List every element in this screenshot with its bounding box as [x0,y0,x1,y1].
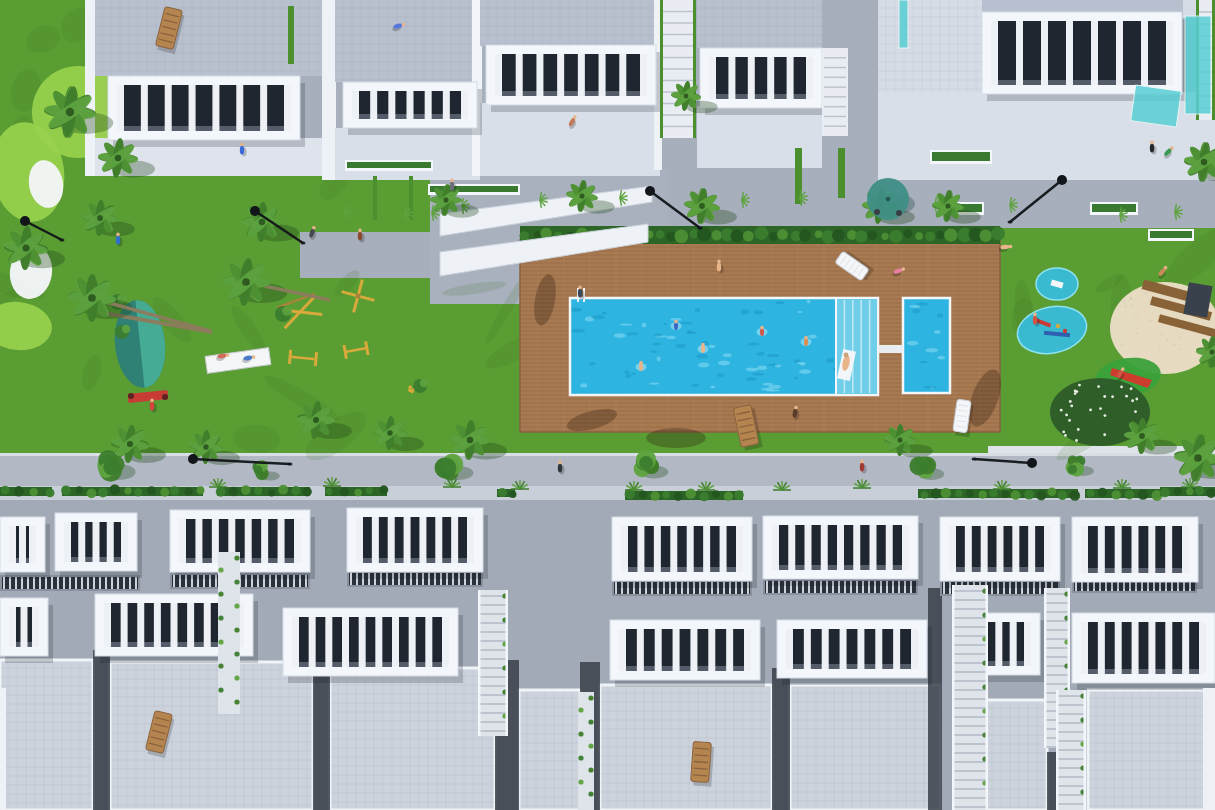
edge-wall [1203,688,1215,810]
terrace-roof [790,685,940,810]
pool-steps [836,298,878,395]
shadow-gap [93,650,110,810]
rooftop-balustrade [343,82,482,135]
splash-pond [1036,268,1078,300]
pergola-row2 [1072,613,1215,690]
shadow-gap [1047,752,1057,810]
pergola-row1 [763,516,923,586]
building-wall [697,106,822,168]
stair-corridor [952,585,988,810]
building-wall [85,0,95,176]
pergola-row1 [940,517,1065,588]
building-roof [697,0,822,48]
planter-strip [373,176,377,220]
building-roof [878,0,982,92]
pergola-row1 [612,517,757,588]
promenade-ext [300,232,450,278]
pergola-row1 [170,510,315,579]
stair-corridor [218,552,240,714]
edge-wall [0,688,6,810]
pergola-row1 [0,517,50,579]
pergola-row2 [610,620,765,687]
building-wall [480,103,660,176]
rooftop-balustrade [486,45,661,112]
building-roof [335,0,480,82]
pergola-row2 [0,598,53,663]
stairway [660,0,696,138]
aerial-render-svg [0,0,1215,810]
terrace-roof [330,668,495,810]
pergola-row1 [55,513,142,578]
terrace-roof [0,660,93,810]
rooftop-balustrade [108,76,305,147]
lawn-left [0,176,433,462]
shadow-gap [772,668,790,810]
glass-canopy [899,0,908,48]
stairway [822,48,848,136]
main-pool [569,298,878,395]
stair-corridor [578,692,594,810]
pergola-row2 [777,620,932,685]
building-wall [982,0,1185,12]
terrace-roof [519,690,580,810]
building-wall [322,0,336,180]
street-hedgerow [0,486,55,498]
wooden-lounger [690,741,714,786]
planter-bench [1090,202,1138,215]
terrace-roof [110,662,313,810]
kids-pool [903,298,950,393]
building-roof [85,0,332,76]
terrace-roof [600,685,772,810]
glass-canopy [1131,85,1182,127]
planter-bench [1148,229,1194,241]
stair-corridor [478,590,508,736]
terrace-roof [1088,690,1215,810]
stair-corridor [1056,690,1086,810]
pergola-row1 [347,508,488,579]
planter-bench [930,150,992,164]
pool-connector [878,345,903,353]
planter-strip [838,148,845,198]
scene-root [0,0,1215,810]
rooftop-balustrade [700,48,827,115]
glass-canopy [1185,16,1211,114]
road-curb [0,453,1215,456]
building-roof [480,0,660,46]
shadow-gap [928,588,942,810]
pergola-row2 [283,608,463,683]
planter-strip [288,6,294,64]
building-wall [335,128,480,180]
planter-bench [345,160,433,171]
pergola-row1 [1072,517,1203,589]
